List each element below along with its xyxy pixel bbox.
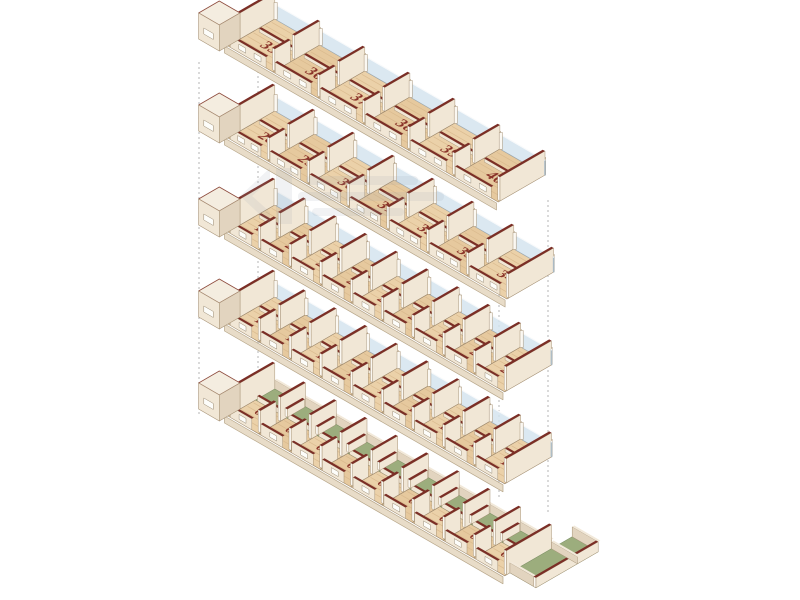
floor-plan-canvas: 3536373839402829303132333419202122232425… bbox=[0, 0, 800, 600]
isometric-floor-plan: 3536373839402829303132333419202122232425… bbox=[0, 0, 800, 600]
